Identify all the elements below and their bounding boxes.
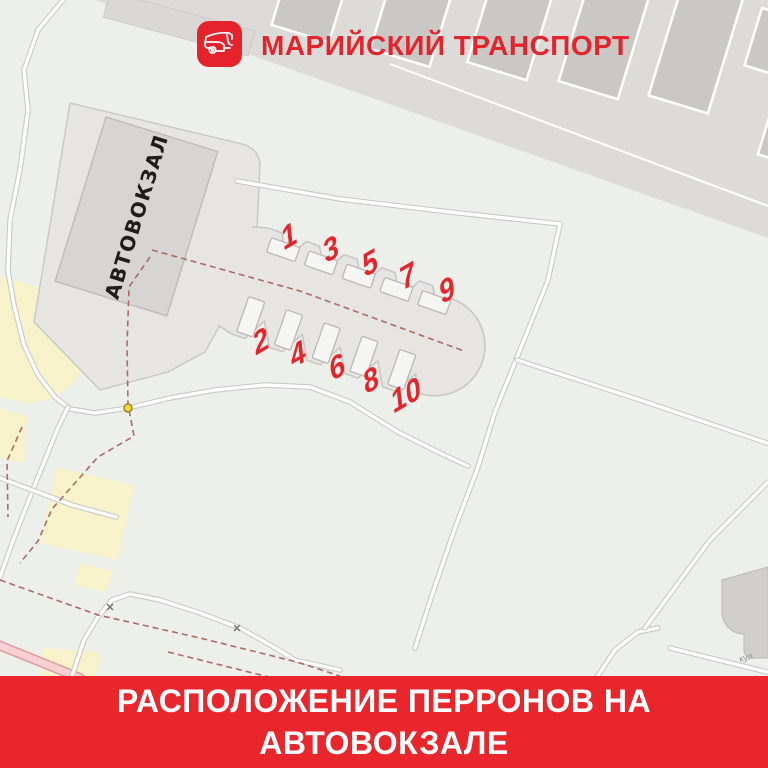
poster: АВТОВОКЗАЛ (0, 0, 768, 768)
bus-icon (203, 27, 237, 61)
brand-title: МАРИЙСКИЙ ТРАНСПОРТ (261, 30, 591, 62)
banner-line2: АВТОВОКЗАЛЕ (259, 723, 508, 763)
road-east-branch (517, 360, 767, 443)
crossing-markers (107, 604, 240, 631)
map-node-dot (124, 404, 132, 412)
bottom-right-building (722, 567, 768, 658)
header: МАРИЙСКИЙ ТРАНСПОРТ (0, 0, 768, 80)
map: АВТОВОКЗАЛ (0, 0, 768, 676)
brand-logo (197, 21, 242, 67)
street-label: кул (738, 651, 754, 664)
banner-line1: РАСПОЛОЖЕНИЕ ПЕРРОНОВ НА (117, 681, 651, 721)
bottom-banner: РАСПОЛОЖЕНИЕ ПЕРРОНОВ НА АВТОВОКЗАЛЕ (0, 676, 768, 768)
